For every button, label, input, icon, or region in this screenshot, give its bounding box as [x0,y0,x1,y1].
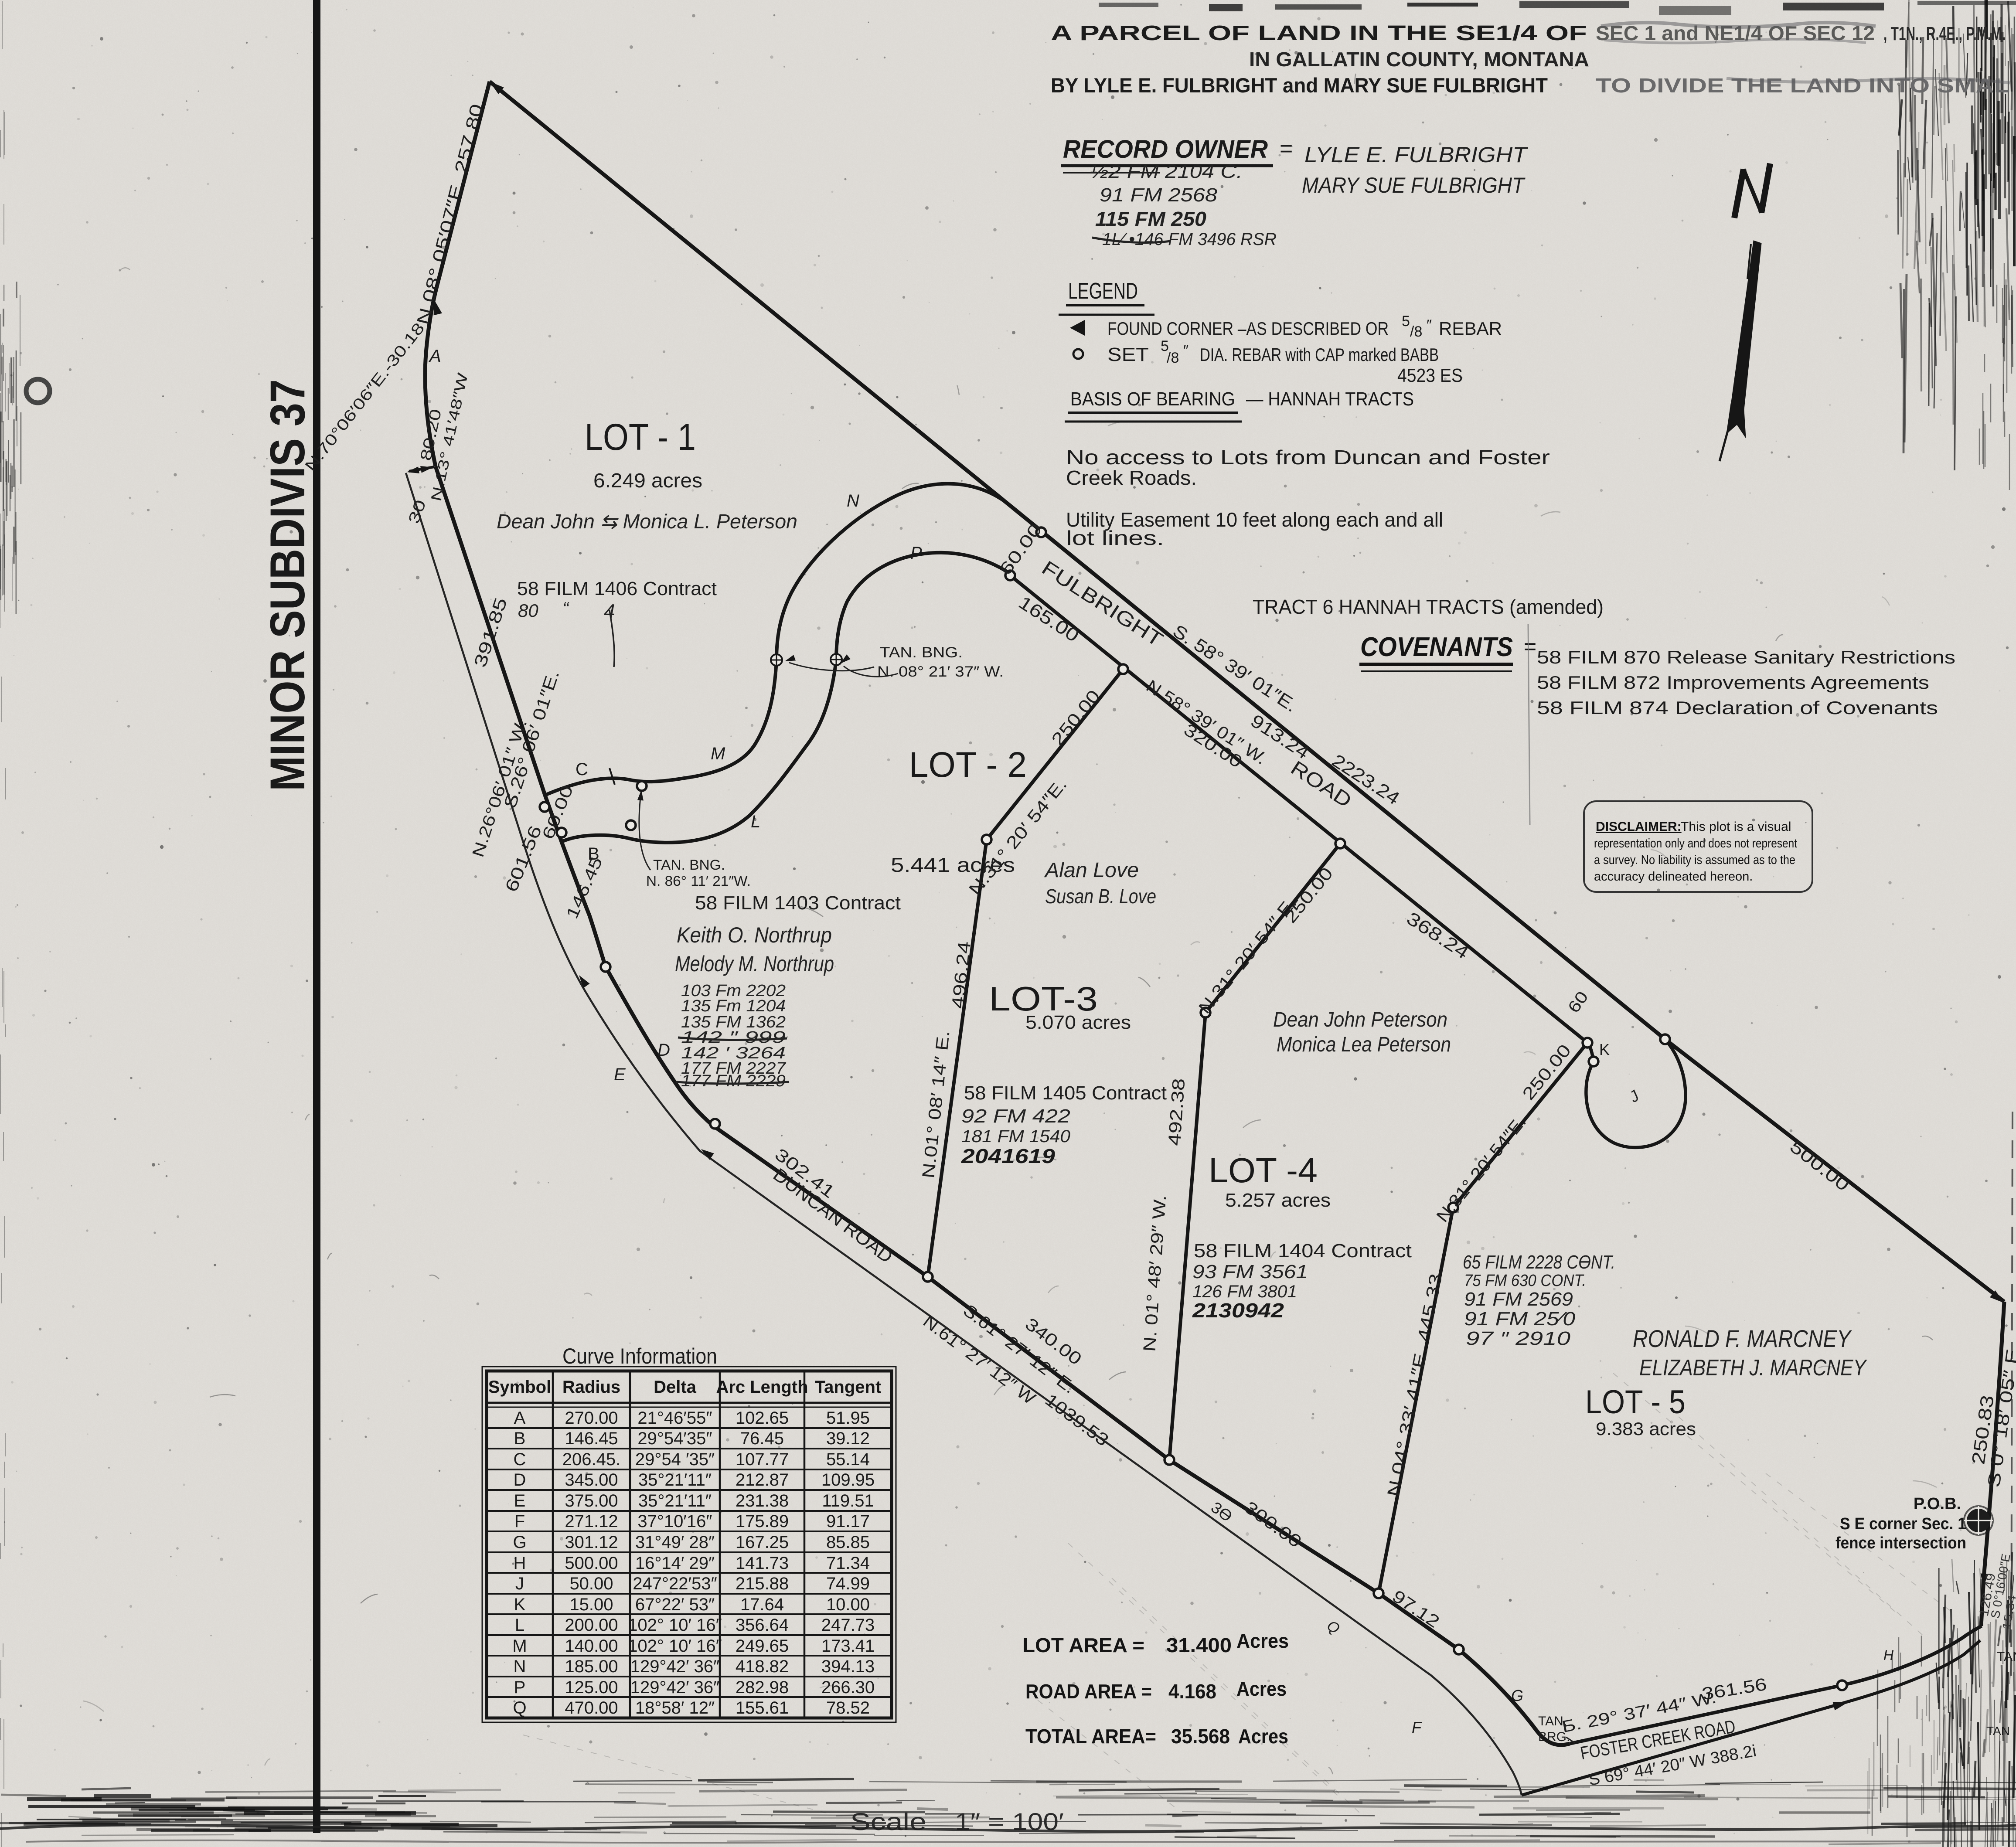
svg-text:126 FM 3801: 126 FM 3801 [1192,1282,1297,1301]
svg-text:This plot is a visual: This plot is a visual [1681,820,1791,834]
svg-text:BY LYLE E. FULBRIGHT and MARY: BY LYLE E. FULBRIGHT and MARY SUE FULBRI… [1051,74,1548,97]
svg-text:C: C [514,1450,526,1469]
svg-text:50.00: 50.00 [569,1574,613,1593]
svg-text:F: F [1412,1718,1422,1736]
svg-text:181 FM 1540: 181 FM 1540 [961,1127,1070,1146]
svg-text:173.41: 173.41 [821,1636,875,1656]
svg-text:=: = [1524,634,1536,659]
svg-text:29°54′35″: 29°54′35″ [637,1429,712,1448]
svg-text:COVENANTS: COVENANTS [1360,632,1513,662]
svg-text:Scale: Scale [850,1808,926,1835]
svg-text:175.89: 175.89 [736,1512,789,1531]
svg-text:Acres: Acres [1238,1725,1288,1748]
svg-text:N. 08° 21′ 37″ W.: N. 08° 21′ 37″ W. [877,663,1004,680]
svg-text:266.30: 266.30 [821,1678,875,1697]
svg-text:“: “ [562,598,569,619]
svg-text:D: D [657,1041,670,1060]
svg-text:15.00: 15.00 [569,1595,613,1614]
svg-text:58 FILM 1406 Contract: 58 FILM 1406 Contract [517,578,717,599]
svg-text:35°21′11″: 35°21′11″ [638,1470,712,1490]
svg-text:92 FM 422: 92 FM 422 [961,1105,1070,1127]
svg-text:249.65: 249.65 [736,1636,789,1656]
svg-text:L: L [751,812,760,831]
svg-text:35°21′11″: 35°21′11″ [638,1491,712,1510]
svg-text:270.00: 270.00 [565,1408,618,1428]
svg-text:200.00: 200.00 [565,1616,618,1635]
svg-text:140.00: 140.00 [565,1636,618,1656]
svg-text:67°22′ 53″: 67°22′ 53″ [635,1595,715,1614]
svg-text:LOT - 5: LOT - 5 [1585,1384,1686,1421]
svg-text:RОNАLD F. MARСNEY: RОNАLD F. MARСNEY [1633,1325,1852,1352]
svg-text:470.00: 470.00 [565,1698,618,1718]
svg-text:71.34: 71.34 [826,1554,870,1573]
svg-text:107.77: 107.77 [736,1450,789,1469]
svg-text:418.82: 418.82 [736,1657,789,1676]
svg-text:231.38: 231.38 [736,1491,789,1510]
svg-text:135 Fm 1204: 135 Fm 1204 [681,997,786,1015]
svg-text:5: 5 [1402,313,1410,330]
svg-text:102° 10′ 16″: 102° 10′ 16″ [628,1636,722,1656]
svg-text:4: 4 [604,600,615,622]
svg-text:9.383 acres: 9.383 acres [1596,1418,1696,1439]
svg-text:85.85: 85.85 [826,1533,870,1552]
svg-text:394.13: 394.13 [821,1657,875,1676]
svg-text:TAN. BNG.: TAN. BNG. [653,857,725,873]
svg-text:H: H [514,1554,526,1573]
svg-text:345.00: 345.00 [565,1470,618,1490]
svg-text:N. 86° 11′ 21″W.: N. 86° 11′ 21″W. [646,873,751,889]
svg-text:fence intersection: fence intersection [1836,1534,1966,1552]
svg-text:80: 80 [518,600,538,621]
svg-text:″: ″ [1427,317,1432,333]
svg-text:91.17: 91.17 [826,1512,870,1531]
svg-text:2130942: 2130942 [1192,1299,1284,1322]
svg-text:TRACT 6 HANNAH TRACTS (: TRACT 6 HANNAH TRACTS (amended) [1253,595,1604,618]
svg-text:271.12: 271.12 [565,1512,618,1531]
svg-text:BASIS OF BEARING: BASIS OF BEARING [1070,388,1235,410]
svg-text:2041619: 2041619 [961,1145,1056,1167]
svg-text:RECORD OWNER: RECORD OWNER [1063,135,1268,163]
svg-text:representation only and does n: representation only and does not represe… [1594,837,1797,850]
svg-text:N: N [514,1657,526,1676]
svg-text:Dean John Peterson: Dean John Peterson [1273,1008,1447,1031]
svg-text:LOT -4: LOT -4 [1209,1151,1318,1190]
svg-text:129°42′ 36″: 129°42′ 36″ [630,1678,720,1697]
svg-text:247°22′53″: 247°22′53″ [633,1574,717,1593]
svg-text:Monica Lea Peterson: Monica Lea Peterson [1277,1033,1451,1056]
svg-text:215.88: 215.88 [736,1574,789,1593]
svg-text:ROAD AREA =: ROAD AREA = [1025,1680,1152,1703]
svg-text:Creek Roads.: Creek Roads. [1066,466,1197,489]
svg-text:177 FM 2229: 177 FM 2229 [681,1072,786,1090]
svg-text:500.00: 500.00 [565,1554,618,1573]
svg-text:accuracy delineated hereon.: accuracy delineated hereon. [1594,870,1753,884]
svg-text:58 FILM 1403 Contract: 58 FILM 1403 Contract [695,892,901,914]
svg-text:N: N [847,491,859,510]
svg-text:91 FM 2569: 91 FM 2569 [1464,1289,1573,1310]
svg-text:E: E [514,1491,526,1510]
svg-text:17.64: 17.64 [740,1595,784,1614]
svg-text:SET: SET [1107,344,1149,365]
svg-text:FOUND CORNER –AS DESCRIBED: FOUND CORNER –AS DESCRIBED OR [1107,318,1389,339]
svg-text:MINOR SUBDIVIS 37: MINOR SUBDIVIS 37 [260,379,315,791]
svg-text:Melody M. Northrup: Melody M. Northrup [675,952,834,976]
svg-text:5.257 acres: 5.257 acres [1225,1190,1331,1211]
svg-text:109.95: 109.95 [821,1470,875,1490]
svg-text:Q: Q [513,1698,526,1718]
svg-text:375.00: 375.00 [565,1491,618,1510]
svg-text:L: L [515,1616,524,1635]
svg-text:212.87: 212.87 [736,1470,789,1490]
svg-text:282.98: 282.98 [736,1678,789,1697]
svg-text:1L⁄ •146 FM 3496 RSR: 1L⁄ •146 FM 3496 RSR [1102,230,1277,249]
svg-text:91 FM 25⁄0: 91 FM 25⁄0 [1464,1308,1576,1330]
svg-text:Keith O. Northrup: Keith O. Northrup [677,923,832,947]
svg-text:TAN: TAN [1986,1724,2010,1738]
svg-text:DISCLAIMER:: DISCLAIMER: [1596,820,1682,834]
svg-text:247.73: 247.73 [821,1616,875,1635]
svg-text:IN GALLATIN COUNTY, MONTANA: IN GALLATIN COUNTY, MONTANA [1249,48,1589,71]
svg-text:B: B [514,1429,526,1448]
svg-text:No access to Lots fro: No access to Lots from Duncan and Foster [1066,446,1550,469]
svg-text:Susan B. Love: Susan B. Love [1045,885,1156,908]
svg-text:58 FILM 1404 Contract: 58 FILM 1404 Contract [1194,1240,1412,1262]
svg-text:301.12: 301.12 [565,1533,618,1552]
svg-text:93 FM 3561: 93 FM 3561 [1192,1261,1308,1282]
svg-text:Tangent: Tangent [815,1378,882,1397]
svg-text:21°46′55″: 21°46′55″ [637,1408,712,1428]
svg-text:Acres: Acres [1236,1677,1287,1700]
svg-text:TAN.: TAN. [1997,1650,2016,1664]
svg-text:ELIZABETH J. MARСNEY: ELIZABETH J. MARСNEY [1639,1355,1867,1381]
svg-text:58 FILM 870 Release Sanitary: 58 FILM 870 Release Sanitary Restriction… [1537,647,1955,667]
svg-text:/8: /8 [1410,323,1422,340]
svg-text:K: K [514,1595,526,1614]
svg-text:A: A [514,1408,526,1428]
svg-text:TAN. BNG.: TAN. BNG. [880,644,963,661]
svg-text:185.00: 185.00 [565,1657,618,1676]
svg-text:G: G [1511,1687,1523,1704]
svg-text:16°14′ 29″: 16°14′ 29″ [635,1554,715,1573]
svg-text:10.00: 10.00 [826,1595,870,1614]
svg-text:½2 FM 2104 C.: ½2 FM 2104 C. [1090,161,1243,182]
svg-text:Alan Love: Alan Love [1044,859,1139,882]
svg-text:REBAR: REBAR [1439,318,1502,339]
svg-text:TOTAL AREA=: TOTAL AREA= [1025,1725,1156,1748]
svg-text:LEGEND: LEGEND [1068,279,1138,304]
svg-text:E: E [614,1065,626,1084]
svg-text:6.249 acres: 6.249 acres [593,469,702,492]
svg-text:M: M [711,744,725,763]
svg-text:lot lines.: lot lines. [1066,527,1164,549]
svg-text:4523 ES: 4523 ES [1397,365,1463,386]
svg-text:J: J [515,1574,524,1593]
svg-text:P.O.B.: P.O.B. [1914,1495,1961,1513]
svg-text:119.51: 119.51 [822,1491,874,1510]
svg-text:115 FM 250: 115 FM 250 [1095,207,1206,230]
svg-text:S E corner Sec. 1: S E corner Sec. 1 [1840,1515,1966,1533]
svg-text:DIA. REBAR with CAP marked: DIA. REBAR with CAP marked BABB [1200,344,1439,365]
svg-text:Acres: Acres [1236,1629,1289,1652]
svg-text:129°42′ 36″: 129°42′ 36″ [630,1657,720,1676]
svg-text:F: F [514,1512,525,1531]
svg-text:155.61: 155.61 [736,1698,789,1718]
svg-text:102.65: 102.65 [736,1408,789,1428]
svg-text:G: G [513,1533,526,1552]
svg-text:a survey. No liability is ass: a survey. No liability is assumed as to … [1594,853,1795,867]
svg-text:B: B [588,844,599,864]
svg-text:74.99: 74.99 [826,1574,870,1593]
svg-text:P: P [514,1678,526,1697]
svg-text:37°10′16″: 37°10′16″ [637,1512,712,1531]
svg-text:H: H [1883,1647,1894,1663]
svg-text:206.45.: 206.45. [562,1450,620,1469]
svg-text:167.25: 167.25 [736,1533,789,1552]
svg-text:A PARCEL OF LAND IN THE SE1/4: A PARCEL OF LAND IN THE SE1/4 OF [1051,22,1587,45]
svg-text:31°49′ 28″: 31°49′ 28″ [635,1533,715,1552]
svg-text:LOT - 2: LOT - 2 [909,745,1027,785]
svg-text:97 ″ 2910: 97 ″ 2910 [1466,1328,1571,1349]
svg-text:C: C [576,760,588,779]
svg-text:75 FM 630 CONT.: 75 FM 630 CONT. [1464,1272,1586,1290]
svg-text:91 FM 2568: 91 FM 2568 [1100,184,1218,206]
svg-text:31.400: 31.400 [1166,1634,1232,1657]
svg-text:— HANNAH TRACTS: — HANNAH TRACTS [1246,388,1414,410]
svg-text:55.14: 55.14 [826,1450,870,1469]
svg-text:″: ″ [1183,342,1188,359]
svg-text:18°58′ 12″: 18°58′ 12″ [635,1698,715,1718]
svg-text:4.168: 4.168 [1168,1680,1216,1703]
svg-text:58 FILM 874 Declaration of: 58 FILM 874 Declaration of Covenants [1537,697,1938,718]
svg-text:29°54 ′35″: 29°54 ′35″ [635,1450,715,1469]
svg-text:58 FILM 872 Improvements Ag: 58 FILM 872 Improvements Agreements [1537,672,1929,693]
svg-text:P: P [910,544,922,563]
svg-text:102° 10′ 16″: 102° 10′ 16″ [628,1616,722,1635]
svg-text:125.00: 125.00 [565,1678,618,1697]
svg-text:76.45: 76.45 [740,1429,784,1448]
svg-text:Radius: Radius [562,1378,620,1397]
svg-text:Symbol: Symbol [488,1378,551,1397]
svg-text:K: K [1599,1041,1610,1058]
svg-text:58 FILM 1405 Contract: 58 FILM 1405 Contract [964,1082,1167,1104]
svg-text:A: A [429,347,441,366]
svg-text:146.45: 146.45 [565,1429,618,1448]
svg-text:39.12: 39.12 [826,1429,870,1448]
svg-text:, T1N., R.4E., P.M.M.: , T1N., R.4E., P.M.M. [1883,23,2006,44]
svg-text:LOT - 1: LOT - 1 [585,416,696,458]
svg-text:MARY SUE FULBRIGHT: MARY SUE FULBRIGHT [1302,173,1526,197]
svg-text:/8: /8 [1167,350,1179,366]
svg-text:D: D [514,1470,526,1490]
svg-text:65 FILM 2228 CӨNT.: 65 FILM 2228 CӨNT. [1463,1252,1615,1273]
svg-text:Delta: Delta [654,1378,697,1397]
svg-text:78.52: 78.52 [826,1698,870,1718]
svg-text:LYLE E. FULBRIGHT: LYLE E. FULBRIGHT [1304,143,1529,167]
svg-text:Curve Information: Curve Information [562,1344,717,1368]
svg-text:5.070 acres: 5.070 acres [1025,1012,1131,1033]
svg-text:Dean John ⇆ Monica L. Peterson: Dean John ⇆ Monica L. Peterson [497,510,797,533]
svg-text:M: M [512,1636,527,1656]
svg-text:51.95: 51.95 [826,1408,870,1428]
svg-text:35.568: 35.568 [1171,1725,1230,1748]
svg-text:Arc Length: Arc Length [716,1378,808,1397]
svg-text:=: = [1280,136,1293,161]
svg-text:356.64: 356.64 [736,1616,789,1635]
svg-text:141.73: 141.73 [736,1554,789,1573]
svg-text:LOT AREA =: LOT AREA = [1022,1634,1144,1657]
